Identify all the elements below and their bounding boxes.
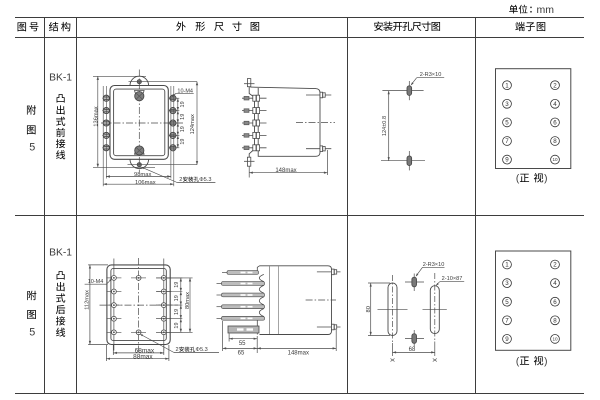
svg-text:19: 19: [180, 139, 186, 145]
svg-text:2: 2: [179, 177, 182, 183]
svg-text:2-10×87: 2-10×87: [442, 276, 463, 282]
svg-text:10: 10: [552, 337, 558, 342]
svg-text:5: 5: [29, 326, 35, 338]
svg-text:148max: 148max: [288, 351, 309, 357]
svg-text:7: 7: [505, 138, 509, 145]
svg-text:Φ5.3: Φ5.3: [196, 347, 208, 353]
svg-text:1: 1: [505, 262, 509, 269]
svg-text:9: 9: [505, 157, 509, 164]
svg-text:124±0.8: 124±0.8: [382, 116, 388, 136]
svg-text:5: 5: [29, 142, 35, 154]
svg-text:4: 4: [553, 101, 557, 108]
svg-text:106max: 106max: [135, 180, 156, 186]
svg-text:2: 2: [176, 347, 179, 353]
svg-text:19: 19: [180, 101, 186, 107]
svg-text:2-R3×10: 2-R3×10: [420, 72, 442, 78]
svg-text:148max: 148max: [275, 168, 296, 174]
svg-text:1: 1: [505, 82, 509, 89]
svg-text:112max: 112max: [84, 290, 90, 310]
svg-text:BK-1: BK-1: [49, 72, 72, 83]
svg-text:88max: 88max: [133, 354, 153, 361]
svg-text:80: 80: [366, 306, 372, 312]
svg-text:19: 19: [174, 282, 180, 288]
svg-text:5: 5: [505, 120, 509, 127]
svg-text:mm: mm: [537, 4, 555, 16]
svg-text:55: 55: [239, 341, 246, 347]
svg-text:): ): [544, 174, 547, 185]
svg-text:19: 19: [180, 114, 186, 120]
svg-text:19: 19: [174, 295, 180, 301]
svg-text:124max: 124max: [190, 114, 196, 134]
svg-text:): ): [544, 356, 547, 367]
svg-text:68: 68: [409, 347, 416, 353]
svg-text:5: 5: [505, 299, 509, 306]
svg-text:9: 9: [505, 336, 509, 343]
svg-text:98max: 98max: [134, 172, 152, 178]
svg-text:8: 8: [553, 138, 557, 145]
svg-text:19: 19: [174, 322, 180, 328]
svg-text:3: 3: [505, 101, 509, 108]
svg-text:136max: 136max: [93, 106, 99, 126]
svg-text:6: 6: [553, 299, 557, 306]
svg-text:2: 2: [553, 262, 557, 269]
svg-text:4: 4: [553, 280, 557, 287]
svg-text:8: 8: [553, 317, 557, 324]
svg-text:7: 7: [505, 317, 509, 324]
svg-text:80max: 80max: [185, 292, 191, 309]
svg-text:6: 6: [553, 120, 557, 127]
svg-text:3: 3: [505, 280, 509, 287]
svg-text:Φ5.3: Φ5.3: [199, 177, 211, 183]
svg-text:10: 10: [552, 157, 558, 162]
svg-text:2: 2: [553, 82, 557, 89]
svg-text:19: 19: [180, 126, 186, 132]
svg-text:BK-1: BK-1: [49, 248, 72, 259]
svg-text:65: 65: [238, 351, 245, 357]
svg-text:19: 19: [174, 309, 180, 315]
